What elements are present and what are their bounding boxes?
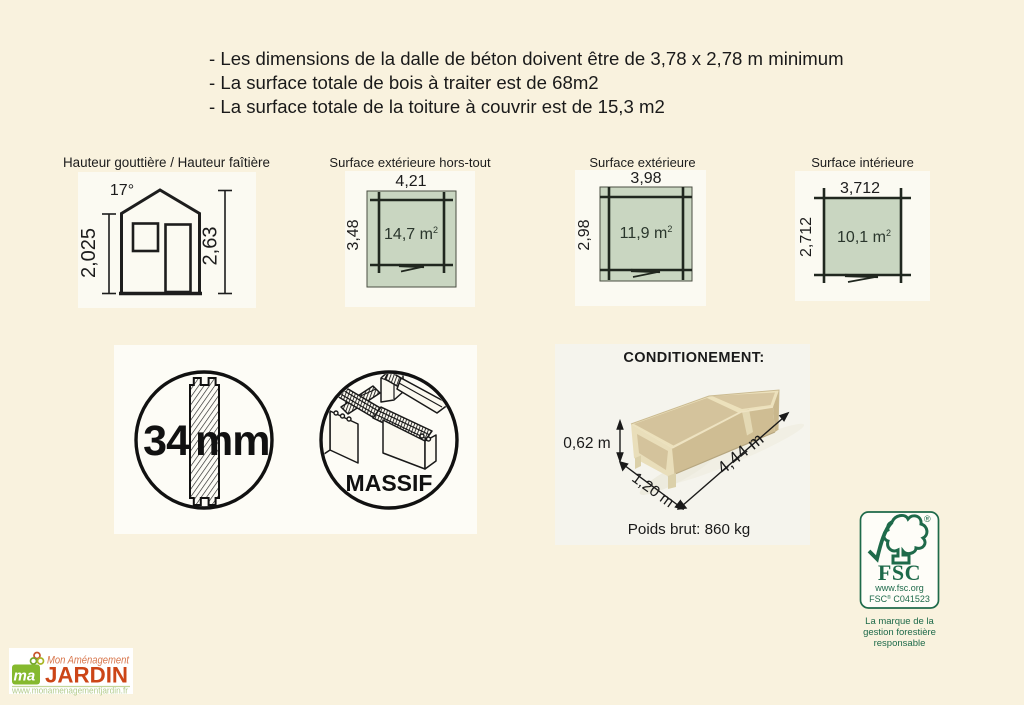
svg-text:www.fsc.org: www.fsc.org [874, 583, 924, 593]
svg-text:3,98: 3,98 [630, 170, 661, 187]
svg-text:2,712: 2,712 [798, 217, 815, 257]
svg-text:ma: ma [14, 668, 36, 685]
svg-text:FSC: FSC [878, 560, 921, 585]
svg-text:La marque de la: La marque de la [865, 616, 934, 627]
svg-text:www.monamenagementjardin.fr: www.monamenagementjardin.fr [11, 686, 128, 696]
svg-text:FSC® C041523: FSC® C041523 [869, 594, 930, 604]
svg-text:17°: 17° [110, 182, 134, 199]
svg-text:2,98: 2,98 [576, 219, 593, 250]
svg-text:0,62 m: 0,62 m [563, 435, 610, 452]
svg-text:3,48: 3,48 [345, 219, 362, 250]
svg-text:Poids brut: 860 kg: Poids brut: 860 kg [628, 521, 750, 538]
svg-text:14,7 m2: 14,7 m2 [384, 225, 438, 243]
svg-text:CONDITIONEMENT:: CONDITIONEMENT: [623, 350, 764, 366]
svg-text:responsable: responsable [874, 638, 926, 649]
svg-text:gestion forestière: gestion forestière [863, 627, 936, 638]
svg-text:JARDIN: JARDIN [45, 663, 128, 688]
svg-text:mm: mm [195, 417, 269, 465]
svg-text:3,712: 3,712 [840, 180, 880, 197]
svg-text:®: ® [924, 514, 931, 524]
svg-text:4,21: 4,21 [395, 173, 426, 190]
svg-text:10,1 m2: 10,1 m2 [837, 228, 891, 246]
svg-text:2,63: 2,63 [200, 227, 222, 266]
svg-text:MASSIF: MASSIF [346, 470, 433, 496]
svg-text:11,9 m2: 11,9 m2 [620, 224, 673, 242]
svg-text:34: 34 [143, 417, 190, 465]
svg-text:2,025: 2,025 [78, 228, 100, 278]
